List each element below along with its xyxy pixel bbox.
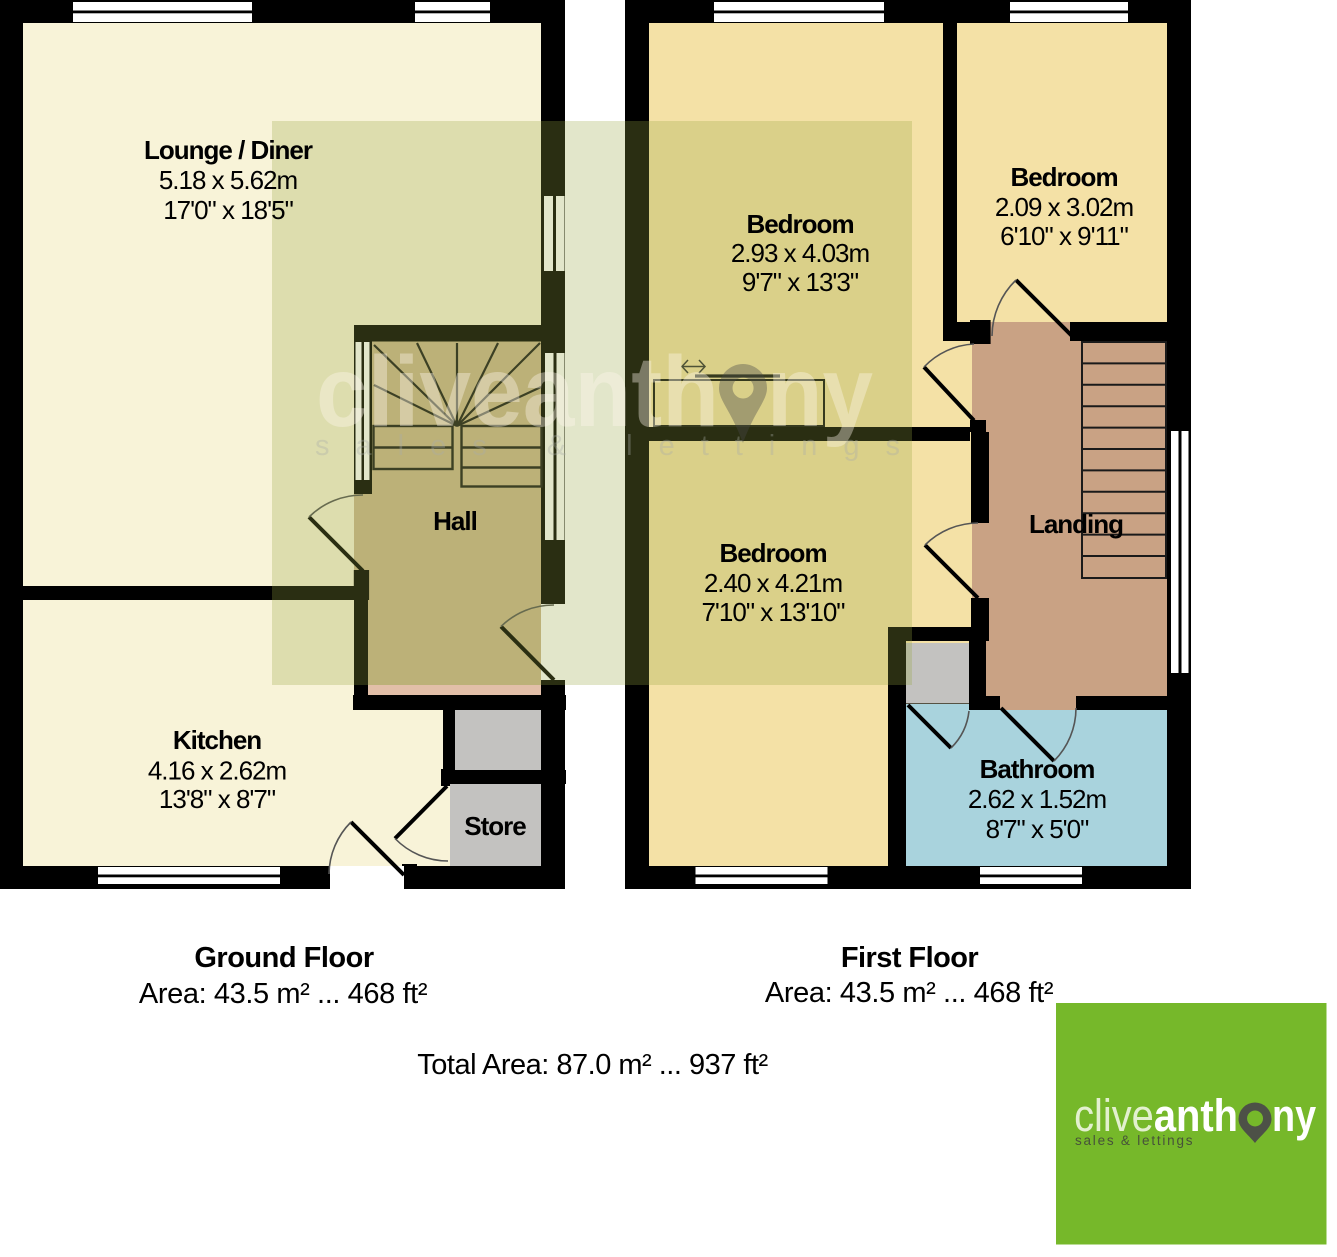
svg-text:ny: ny xyxy=(1272,1090,1316,1141)
svg-text:13'8" x 8'7": 13'8" x 8'7" xyxy=(159,784,276,814)
svg-text:Store: Store xyxy=(464,811,526,841)
svg-text:5.18 x 5.62m: 5.18 x 5.62m xyxy=(159,165,297,195)
svg-text:Landing: Landing xyxy=(1029,509,1123,539)
svg-text:7'10" x 13'10": 7'10" x 13'10" xyxy=(701,597,845,627)
svg-text:Lounge / Diner: Lounge / Diner xyxy=(144,135,313,165)
svg-text:Area: 43.5 m² ... 468 ft²: Area: 43.5 m² ... 468 ft² xyxy=(139,978,428,1010)
svg-text:Total Area: 87.0 m² ... 937 ft: Total Area: 87.0 m² ... 937 ft² xyxy=(417,1049,768,1081)
svg-text:6'10" x 9'11": 6'10" x 9'11" xyxy=(1000,221,1128,251)
svg-text:Bedroom: Bedroom xyxy=(746,209,853,239)
svg-text:2.40 x 4.21m: 2.40 x 4.21m xyxy=(704,568,842,598)
svg-text:Bedroom: Bedroom xyxy=(719,538,826,568)
svg-text:2.62 x 1.52m: 2.62 x 1.52m xyxy=(968,784,1106,814)
svg-text:8'7" x 5'0": 8'7" x 5'0" xyxy=(986,814,1089,844)
svg-text:Bathroom: Bathroom xyxy=(980,754,1095,784)
svg-text:Hall: Hall xyxy=(433,506,477,536)
svg-text:Kitchen: Kitchen xyxy=(173,725,261,755)
svg-text:9'7" x 13'3": 9'7" x 13'3" xyxy=(742,267,859,297)
svg-text:17'0" x 18'5": 17'0" x 18'5" xyxy=(163,195,293,225)
svg-text:2.09 x 3.02m: 2.09 x 3.02m xyxy=(995,192,1133,222)
svg-text:sales & lettings: sales & lettings xyxy=(1075,1133,1197,1148)
svg-text:2.93 x 4.03m: 2.93 x 4.03m xyxy=(731,238,869,268)
svg-text:Ground Floor: Ground Floor xyxy=(194,942,373,974)
svg-text:4.16 x 2.62m: 4.16 x 2.62m xyxy=(148,756,286,786)
svg-text:First Floor: First Floor xyxy=(841,942,979,974)
svg-text:Bedroom: Bedroom xyxy=(1010,162,1117,192)
svg-text:Area: 43.5 m² ... 468 ft²: Area: 43.5 m² ... 468 ft² xyxy=(765,977,1054,1009)
